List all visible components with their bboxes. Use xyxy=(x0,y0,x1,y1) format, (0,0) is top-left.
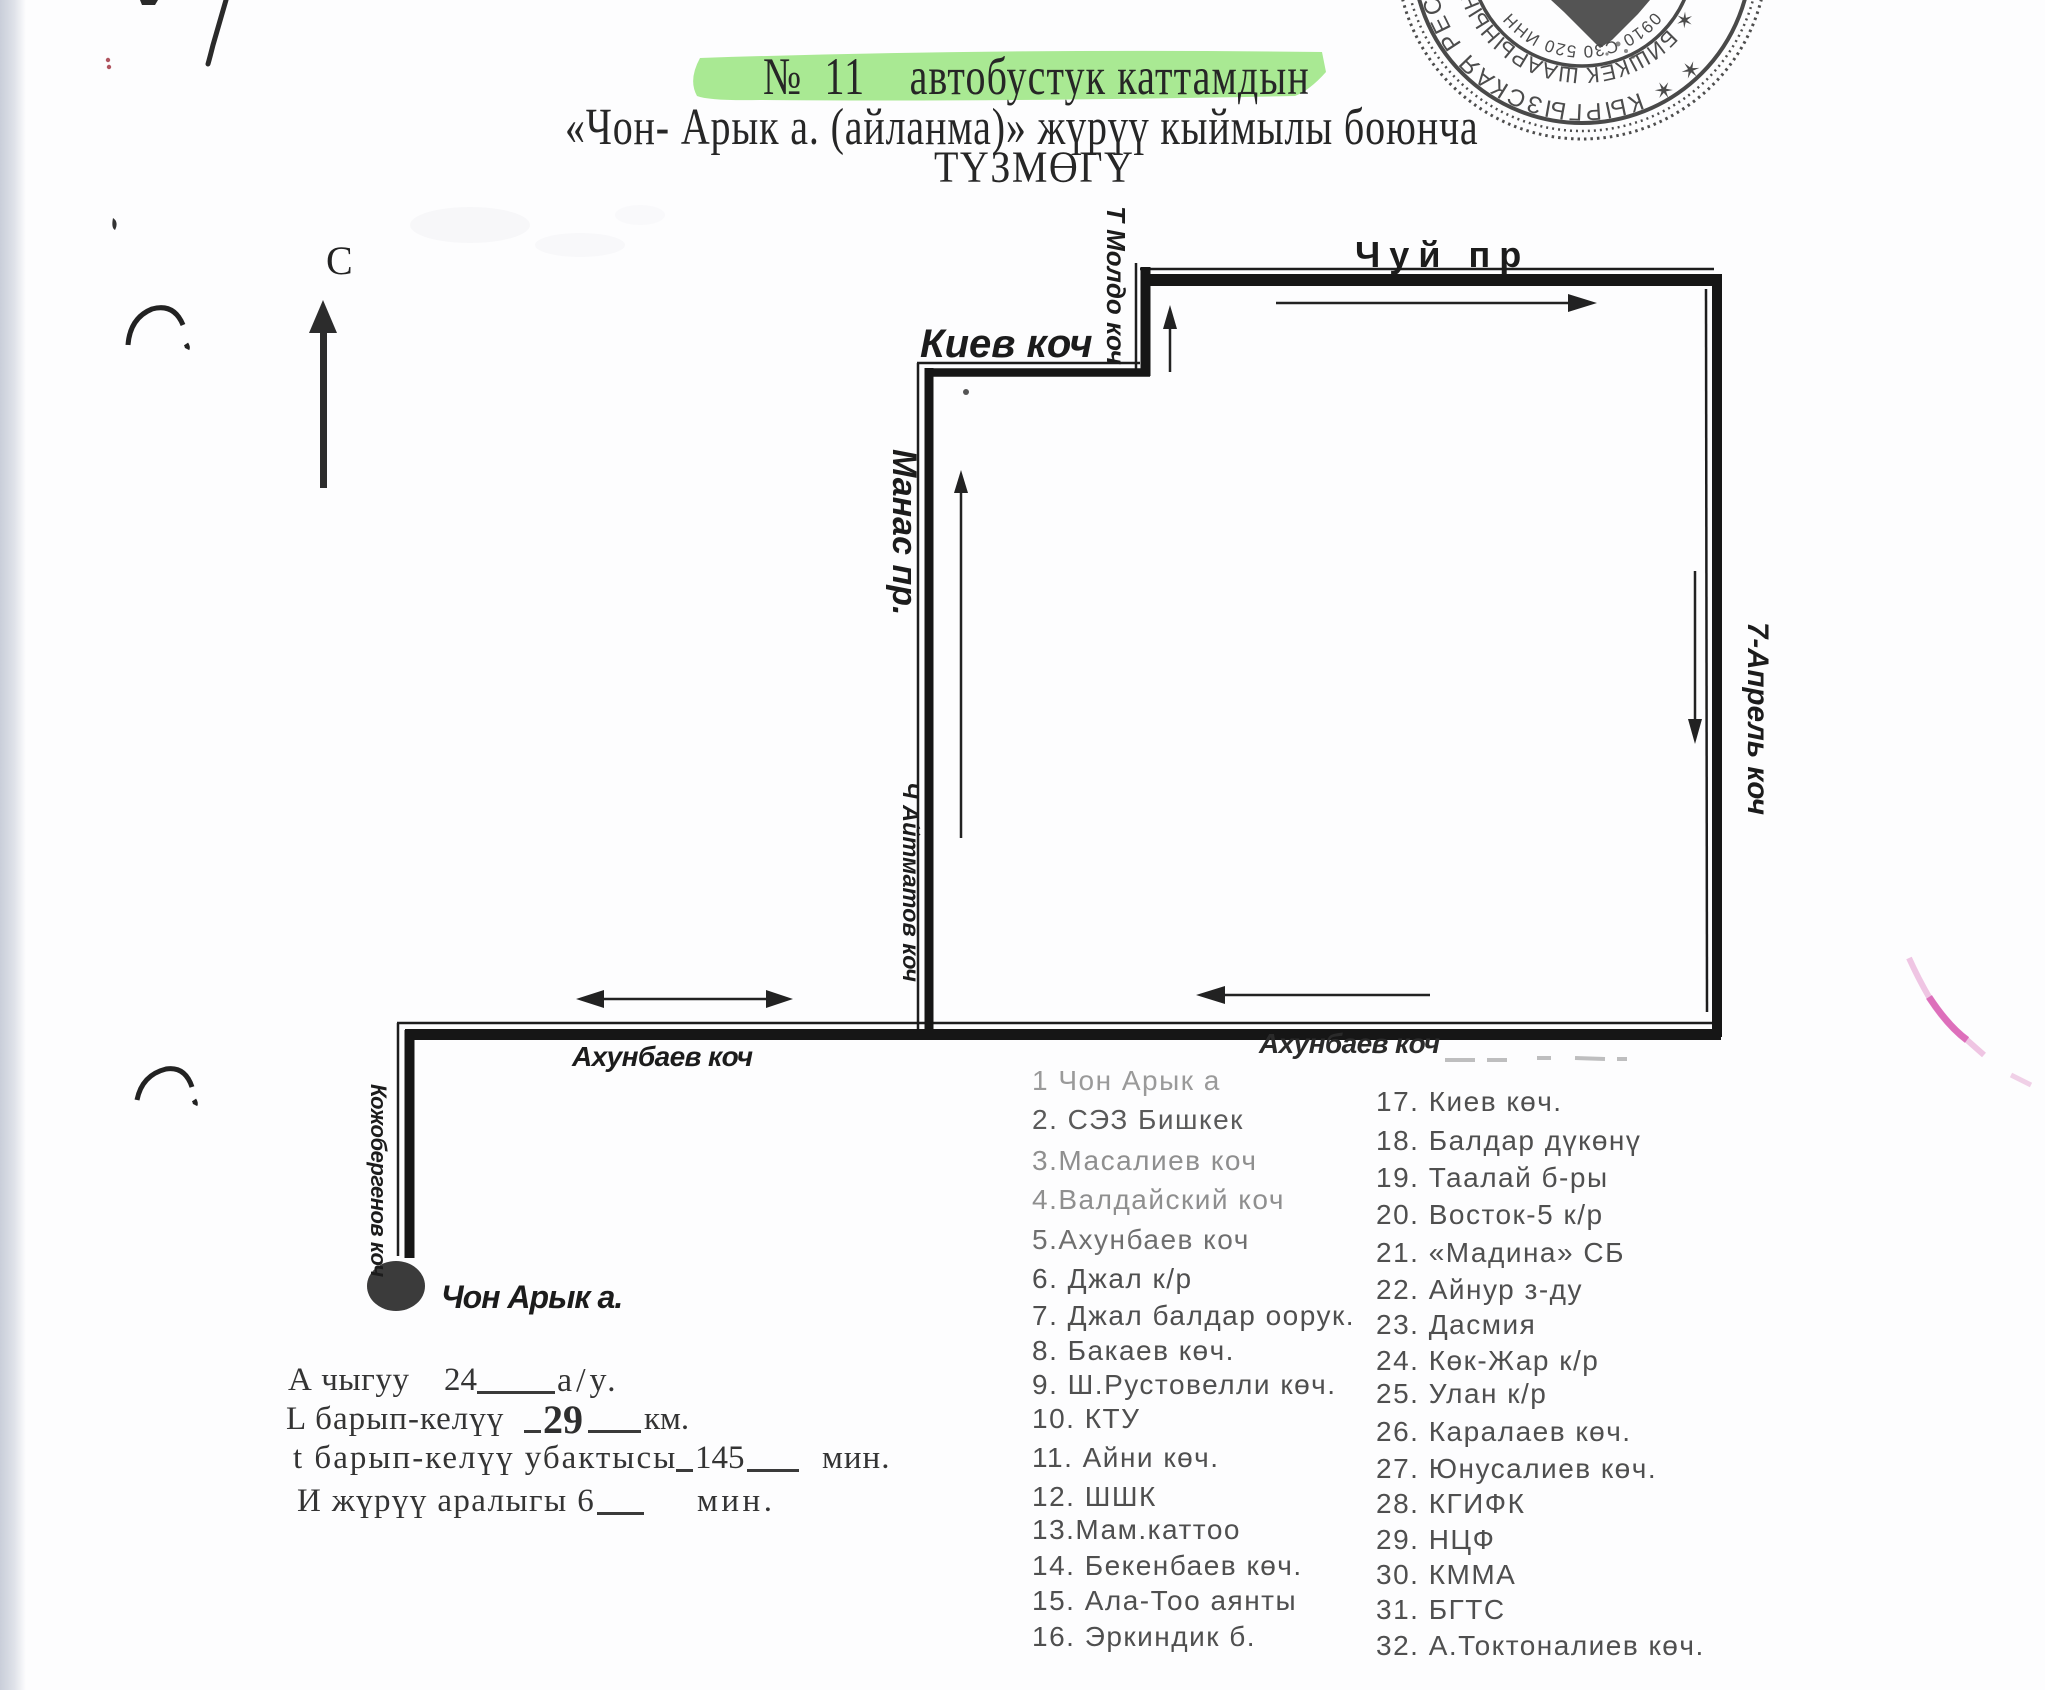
svg-text:Ахунбаев коч: Ахунбаев коч xyxy=(571,1041,753,1072)
svg-text:Киев коч: Киев коч xyxy=(920,322,1093,366)
svg-text:Ахунбаев коч: Ахунбаев коч xyxy=(1258,1028,1440,1059)
svg-text:Т Молдо коч: Т Молдо коч xyxy=(1101,206,1131,365)
svg-text:Кожобергенов коч: Кожобергенов коч xyxy=(366,1084,391,1277)
svg-text:7-Апрель коч: 7-Апрель коч xyxy=(1741,622,1774,815)
svg-text:C: C xyxy=(326,238,353,283)
svg-text:Чон Арык а.: Чон Арык а. xyxy=(441,1279,622,1315)
svg-text:Ч Айтматов коч: Ч Айтматов коч xyxy=(898,782,924,982)
svg-text:Чуй пр: Чуй пр xyxy=(1355,234,1530,275)
svg-text:Манас пр.: Манас пр. xyxy=(885,449,923,615)
